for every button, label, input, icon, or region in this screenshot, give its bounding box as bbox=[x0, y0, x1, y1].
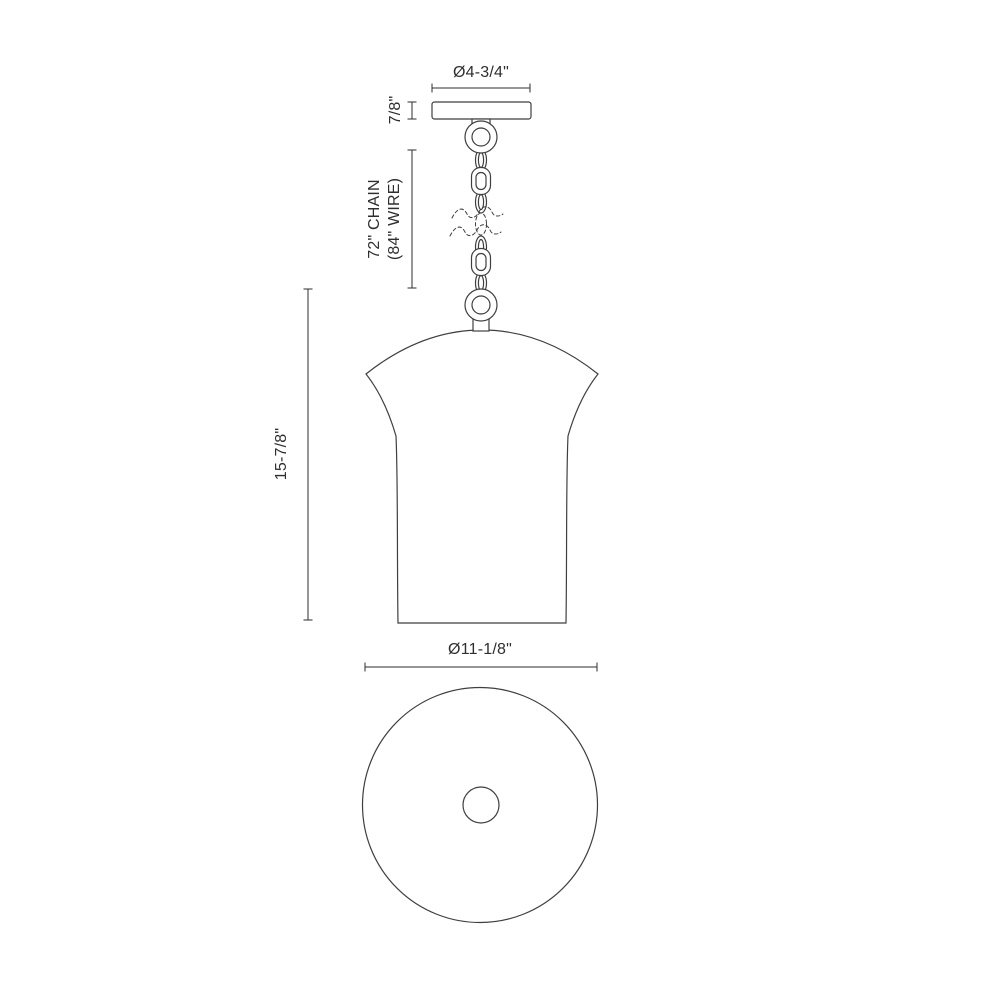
shade-diameter-dimension bbox=[365, 663, 597, 672]
shade-diameter-label: Ø11-1/8" bbox=[448, 641, 512, 659]
hang-ring-bottom bbox=[465, 289, 497, 321]
canopy-height-dimension bbox=[408, 102, 417, 119]
shade-front-view bbox=[366, 330, 598, 623]
bottom-view-socket-circle bbox=[463, 787, 499, 823]
drawing-canvas bbox=[0, 0, 1000, 1000]
canopy-plate bbox=[432, 102, 531, 119]
wire-length-line: (84" WIRE) bbox=[385, 178, 405, 260]
shade-bottom-view bbox=[363, 688, 598, 923]
canopy-diameter-dimension bbox=[432, 84, 530, 93]
canopy-height-label: 7/8" bbox=[387, 96, 405, 125]
shade-outline bbox=[366, 330, 598, 623]
chain-length-line: 72" CHAIN bbox=[365, 178, 385, 260]
fixture-height-label: 15-7/8" bbox=[273, 428, 291, 480]
chain-link-wide bbox=[472, 168, 491, 276]
chain bbox=[450, 121, 503, 321]
hang-ring-top bbox=[465, 121, 497, 153]
chain-break-icon bbox=[450, 207, 503, 236]
fixture-height-dimension bbox=[304, 289, 313, 620]
pendant-dimension-drawing: Ø4-3/4" 7/8" 72" CHAIN (84" WIRE) 15-7/8… bbox=[0, 0, 1000, 1000]
canopy-diameter-label: Ø4-3/4" bbox=[453, 64, 509, 82]
chain-length-dimension bbox=[408, 150, 417, 288]
chain-length-label: 72" CHAIN (84" WIRE) bbox=[365, 178, 405, 260]
